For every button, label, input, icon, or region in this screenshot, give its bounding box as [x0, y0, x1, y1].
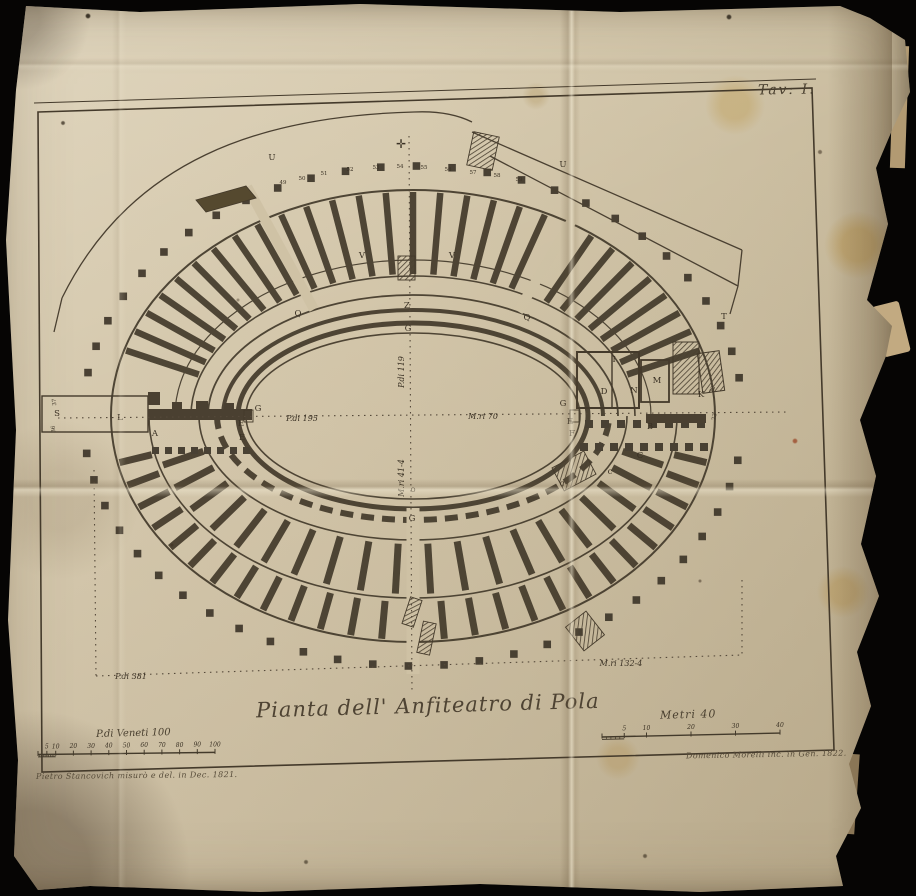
fold-crease-vertical: [560, 0, 580, 896]
plan-label: D: [601, 387, 608, 397]
plan-label: 100: [209, 741, 221, 748]
scale-metric-label: Metri 40: [660, 707, 717, 721]
plan-label: c: [560, 479, 565, 489]
credit-engraver: Domenico Morelli inc. in Gen. 1822.: [686, 749, 847, 761]
plan-label: A: [151, 429, 159, 439]
plan-label: U: [559, 160, 566, 170]
plan-label: 59: [516, 177, 523, 183]
plan-label: 10: [643, 725, 651, 732]
plan-label: 72: [709, 385, 717, 394]
plan-label: Q: [524, 313, 531, 323]
plan-label: 40: [775, 722, 784, 729]
plate-paper: UUVVQQZGTSLAGEEGEFIDNMKBCccoG49505152535…: [0, 0, 916, 896]
plan-label: ✛: [396, 137, 406, 151]
plan-label: 50: [299, 176, 306, 182]
plan-label: o: [410, 485, 415, 495]
plan-label: E: [239, 433, 245, 443]
plan-label: 37: [52, 398, 59, 406]
plan-label: 54: [397, 164, 404, 170]
torn-edge-shadow: [828, 0, 892, 896]
plan-label: 5: [622, 726, 626, 733]
plan-label: L: [117, 413, 123, 423]
plan-label: P.di 381: [114, 672, 147, 681]
plan-label: 90: [193, 742, 201, 749]
plan-label: 58: [494, 173, 501, 179]
plan-label: S: [54, 409, 60, 419]
plan-label: U: [268, 153, 275, 163]
plan-label: G: [409, 514, 416, 524]
plan-label: 36: [51, 425, 58, 433]
plan-label: 57: [470, 170, 477, 176]
plan-label: P.di 195: [285, 414, 318, 423]
plan-label: 51: [321, 171, 328, 177]
west-court-and-wall: [42, 392, 252, 432]
plan-label: 53: [373, 165, 380, 171]
hill-arc-and-section-lines: [54, 112, 742, 332]
plan-label: 40: [104, 743, 113, 750]
plan-label: 80: [176, 742, 184, 749]
plan-label: K: [698, 390, 705, 400]
plan-label: 70: [158, 742, 166, 749]
measurement-axes: [58, 136, 788, 694]
plan-label: F: [569, 429, 575, 439]
plan-label: B: [647, 422, 653, 432]
plan-label: 5: [45, 743, 49, 750]
plan-label: 49: [280, 180, 287, 186]
southeast-stair: [552, 451, 596, 491]
fold-crease-horizontal-2: [0, 58, 916, 71]
plan-label: M.ri 41-4: [397, 459, 406, 498]
plan-label: T: [721, 312, 727, 322]
plan-label: G: [255, 404, 262, 414]
fold-crease-horizontal: [0, 479, 916, 497]
plan-label: 56: [445, 167, 452, 173]
plan-label: G: [405, 324, 412, 334]
plan-label: 50: [123, 742, 131, 749]
arena-west-block: [244, 410, 253, 422]
fold-crease-vertical-2: [112, 0, 126, 896]
plan-label: 20: [69, 743, 78, 750]
northwest-ruin-blob: [196, 186, 256, 212]
north-ramp: [467, 132, 500, 171]
plan-label: V: [358, 251, 366, 261]
plan-label: 55: [421, 165, 428, 171]
plan-label: M.ri 132-4: [599, 659, 643, 668]
south-east-gate: [566, 611, 605, 651]
plan-label: 30: [87, 743, 95, 750]
plan-label: M: [653, 376, 662, 386]
plan-label: Q: [295, 309, 302, 319]
plate-title: Pianta dell' Anfiteatro di Pola: [256, 690, 573, 723]
hatched-structures: [196, 132, 604, 655]
plan-label: E: [567, 417, 573, 427]
plate-border: [34, 79, 834, 772]
north-gate: [398, 256, 415, 280]
photo-background: UUVVQQZGTSLAGEEGEFIDNMKBCccoG49505152535…: [0, 0, 916, 896]
plan-label: M.ri 70: [467, 412, 498, 421]
plan-label: E: [238, 419, 244, 429]
south-gate-a: [402, 597, 422, 627]
plan-label: N: [630, 386, 638, 396]
plan-label: 20: [686, 724, 695, 731]
plate-number: Tav: I.: [758, 81, 816, 98]
plan-label: 30: [732, 723, 740, 730]
plan-label: P.di 119: [397, 356, 406, 389]
plan-label: V: [448, 251, 456, 261]
south-gate-b: [417, 621, 436, 655]
plan-label: 10: [52, 743, 60, 750]
plan-label: c: [608, 467, 613, 477]
plan-label: 60: [140, 742, 148, 749]
arena-east-block: [570, 410, 579, 422]
plan-label: 73: [711, 412, 718, 420]
plan-label: 52: [347, 167, 354, 173]
plan-label: G: [560, 399, 567, 409]
plan-label: I: [612, 355, 615, 365]
plan-label: C: [637, 451, 644, 461]
plan-label: Z: [404, 301, 410, 311]
scale-venetian-label: P.di Veneti 100: [96, 727, 171, 740]
east-rooms-and-ramp: [577, 342, 725, 423]
engraving-plan: UUVVQQZGTSLAGEEGEFIDNMKBCccoG49505152535…: [0, 0, 916, 896]
credit-surveyor: Pietro Stancovich misurò e del. in Dec. …: [36, 770, 238, 781]
